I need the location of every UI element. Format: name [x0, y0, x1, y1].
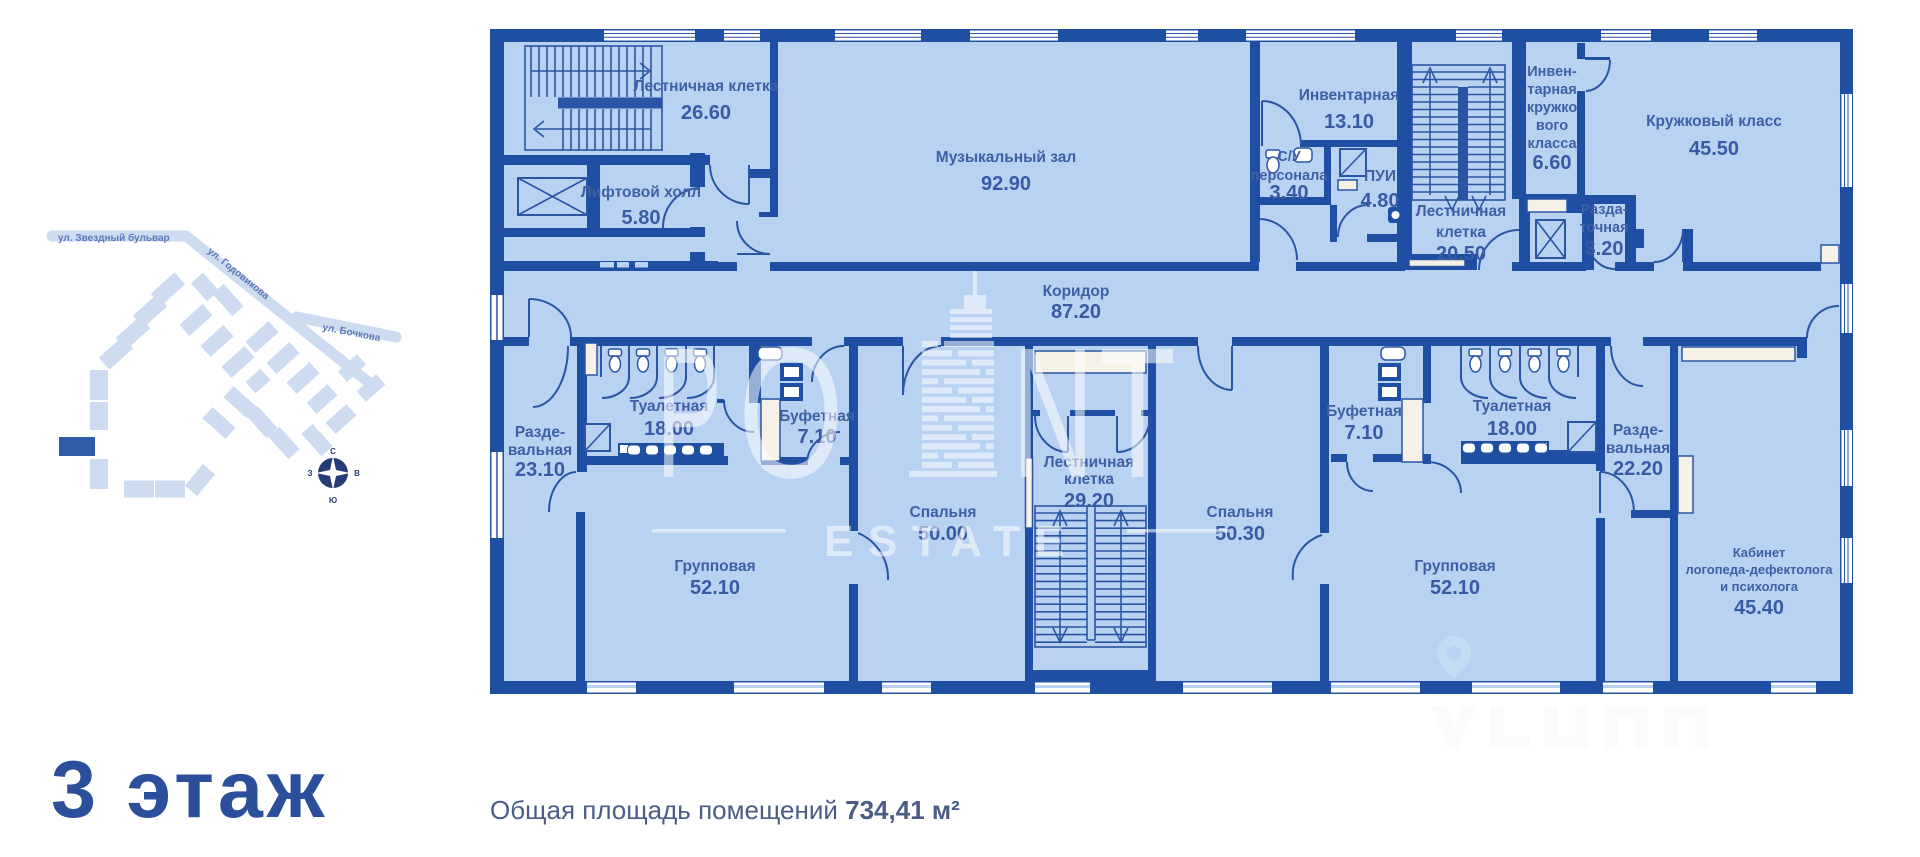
svg-text:13.10: 13.10 [1324, 111, 1374, 133]
svg-text:Кружковый класс: Кружковый класс [1646, 113, 1782, 130]
svg-text:6.60: 6.60 [1533, 152, 1572, 174]
svg-text:и психолога: и психолога [1720, 579, 1799, 594]
svg-text:С/У: С/У [1277, 149, 1302, 165]
svg-text:3.20: 3.20 [1585, 238, 1624, 260]
svg-text:ул. Звездный бульвар: ул. Звездный бульвар [58, 232, 170, 244]
svg-text:3 этаж: 3 этаж [51, 745, 328, 835]
svg-text:ESTATE: ESTATE [824, 517, 1090, 566]
svg-text:Разде-: Разде- [1613, 422, 1663, 439]
svg-text:Буфетная: Буфетная [1326, 403, 1402, 420]
svg-text:Разде-: Разде- [515, 424, 565, 441]
svg-text:тарная: тарная [1527, 82, 1576, 98]
svg-text:вого: вого [1536, 118, 1568, 134]
svg-text:50.30: 50.30 [1215, 523, 1265, 545]
svg-text:Разда-: Разда- [1580, 202, 1627, 218]
svg-text:Кабинет: Кабинет [1733, 545, 1786, 560]
svg-text:Лифтовой холл: Лифтовой холл [581, 184, 701, 201]
svg-text:точная: точная [1579, 220, 1628, 236]
svg-text:Спальня: Спальня [1207, 504, 1274, 521]
svg-text:вальная: вальная [1606, 440, 1670, 457]
svg-text:вальная: вальная [508, 442, 572, 459]
svg-text:26.60: 26.60 [681, 102, 731, 124]
svg-text:класса: класса [1527, 136, 1577, 152]
svg-text:В: В [354, 469, 360, 478]
svg-text:23.10: 23.10 [515, 459, 565, 481]
svg-text:4.80: 4.80 [1361, 190, 1400, 212]
svg-text:52.10: 52.10 [1430, 577, 1480, 599]
svg-text:З: З [307, 469, 312, 478]
svg-text:Ю: Ю [329, 496, 337, 505]
svg-text:Лестничная: Лестничная [1416, 203, 1506, 220]
svg-text:45.50: 45.50 [1689, 138, 1739, 160]
svg-text:Коридор: Коридор [1043, 283, 1110, 300]
svg-text:логопеда-дефектолога: логопеда-дефектолога [1685, 562, 1833, 577]
svg-text:92.90: 92.90 [981, 173, 1031, 195]
svg-text:3.40: 3.40 [1270, 182, 1309, 204]
svg-text:22.20: 22.20 [1613, 458, 1663, 480]
svg-text:клетка: клетка [1436, 224, 1486, 241]
svg-text:Инвен-: Инвен- [1527, 64, 1577, 80]
svg-text:52.10: 52.10 [690, 577, 740, 599]
svg-text:P: P [656, 310, 722, 517]
svg-text:T: T [1099, 310, 1176, 517]
svg-text:O: O [738, 310, 844, 517]
svg-text:7.10: 7.10 [1345, 422, 1384, 444]
svg-text:Групповая: Групповая [674, 558, 755, 575]
svg-text:18.00: 18.00 [1487, 418, 1537, 440]
svg-text:С: С [330, 447, 336, 456]
svg-text:Музыкальный зал: Музыкальный зал [936, 149, 1076, 166]
svg-text:Лестничная клетка: Лестничная клетка [634, 78, 779, 95]
svg-text:Общая площадь помещений 734,41: Общая площадь помещений 734,41 м² [490, 795, 960, 825]
svg-text:Туалетная: Туалетная [1473, 398, 1552, 415]
svg-text:Инвентарная: Инвентарная [1299, 87, 1400, 104]
svg-text:5.80: 5.80 [622, 207, 661, 229]
svg-text:ПУИ: ПУИ [1364, 168, 1396, 185]
svg-text:Групповая: Групповая [1414, 558, 1495, 575]
svg-text:кружко: кружко [1527, 100, 1578, 116]
svg-text:45.40: 45.40 [1734, 597, 1784, 619]
svg-text:20.50: 20.50 [1436, 243, 1486, 265]
svg-text:N: N [1012, 310, 1094, 517]
